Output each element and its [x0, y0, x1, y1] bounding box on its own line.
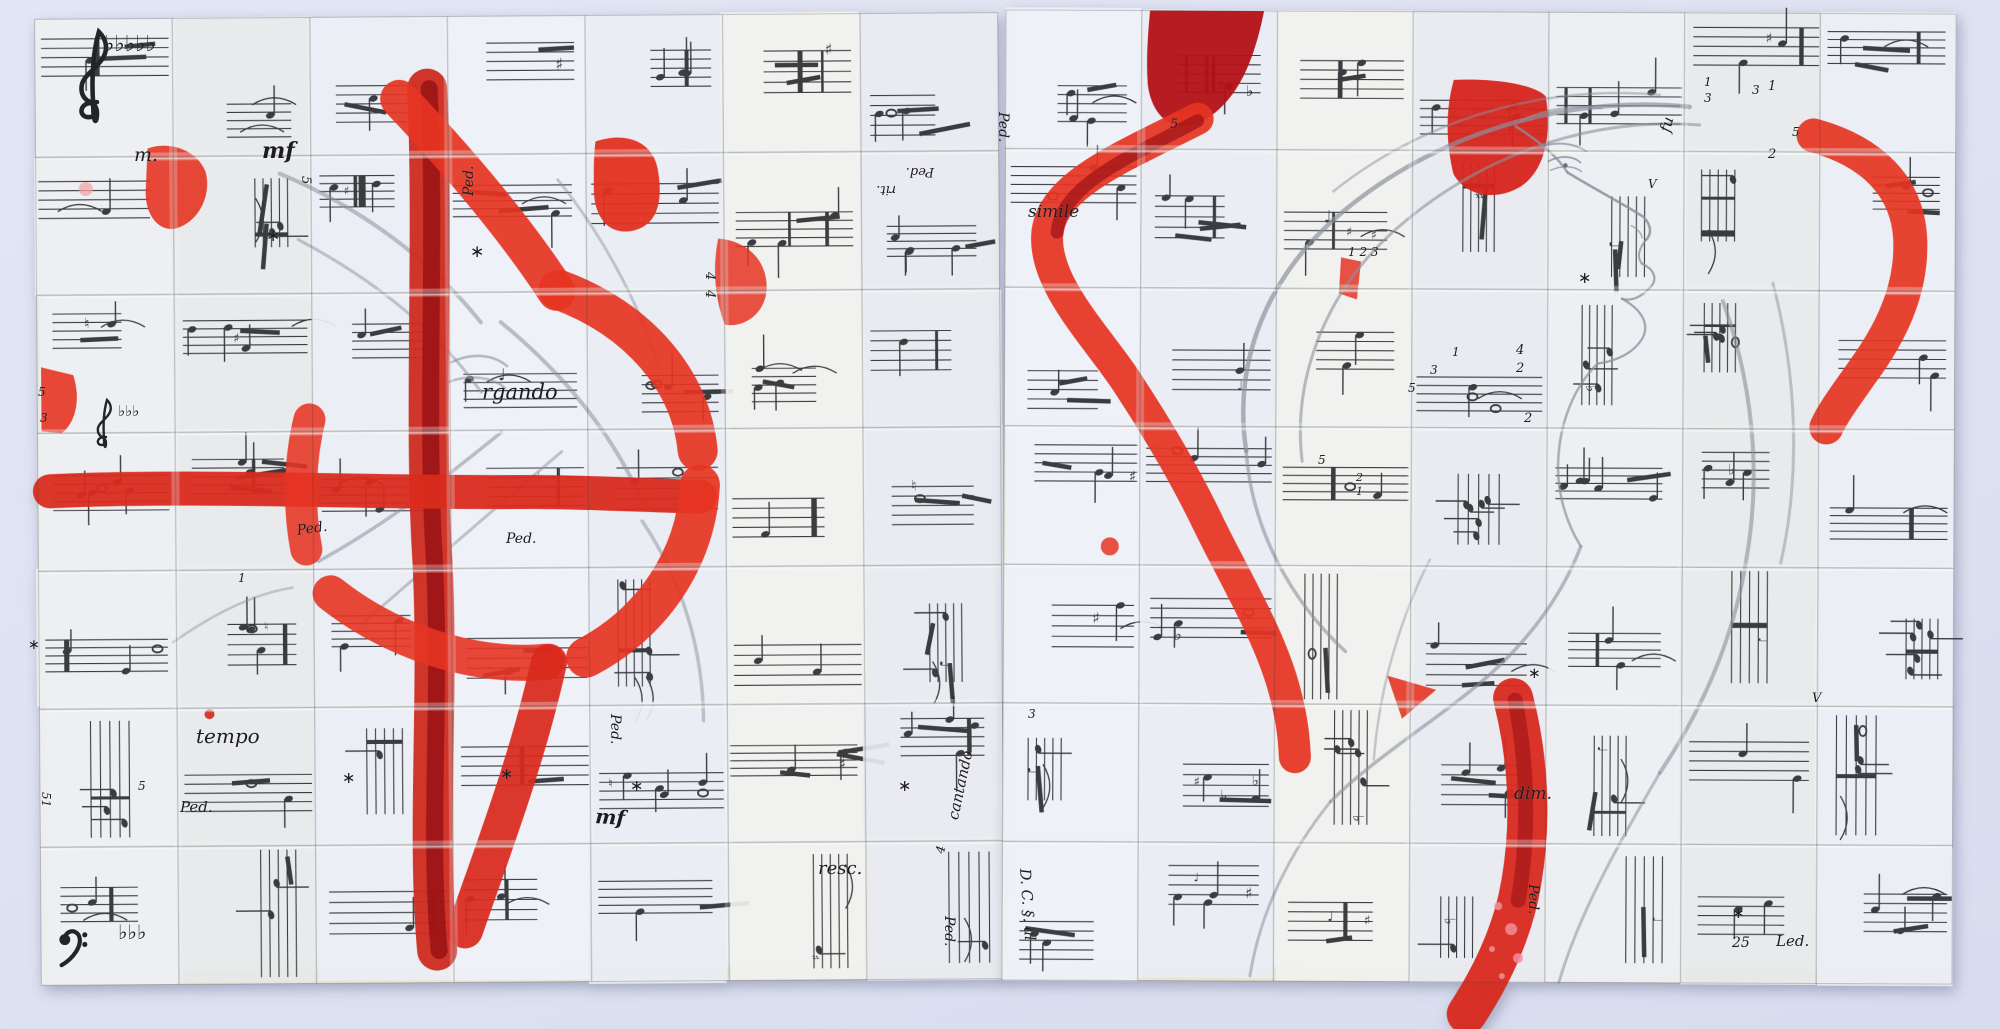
red-paint-splatter	[1513, 953, 1523, 963]
svg-text:♯: ♯	[1194, 774, 1200, 789]
svg-text:♭: ♭	[1582, 385, 1601, 392]
red-paint-splatter	[79, 182, 93, 196]
svg-text:♩: ♩	[1594, 746, 1609, 752]
red-paint-splatter	[1499, 973, 1505, 979]
svg-text:♩: ♩	[1193, 870, 1199, 884]
svg-text:♭: ♭	[1440, 918, 1458, 925]
artwork-photo: ♯♯♯♮♯♩♭♮♮♩♮♯♮♯♯♯♩♯♯♯♩♩♭♯♭♯♭♩♩♯♭♭♭♩♩♯♩♯♭♩…	[0, 0, 2000, 1029]
red-paint-ribbon	[428, 89, 439, 951]
svg-text:♩: ♩	[1024, 767, 1043, 775]
red-paint-splatter	[1505, 923, 1517, 935]
svg-text:♮: ♮	[911, 477, 917, 495]
svg-text:♮: ♮	[608, 775, 613, 790]
collage-artwork-canvas: ♯♯♯♮♯♩♭♮♮♩♮♯♮♯♯♯♩♯♯♯♩♩♭♯♭♯♭♩♩♯♭♭♭♩♩♯♩♯♭♩	[0, 0, 2000, 1029]
svg-text:♯: ♯	[1766, 31, 1773, 47]
svg-text:♩: ♩	[1605, 241, 1624, 249]
red-paint-ribbon	[50, 485, 700, 501]
svg-text:♮: ♮	[264, 619, 268, 633]
svg-text:♮: ♮	[84, 315, 89, 333]
svg-text:♩: ♩	[1756, 637, 1769, 642]
red-paint-ribbon	[301, 419, 311, 549]
red-paint-splatter	[1489, 946, 1495, 952]
svg-text:♯: ♯	[233, 332, 239, 347]
svg-text:♭: ♭	[1220, 786, 1228, 805]
left-panel: ♯♯♯♮♯♩♭♮♮♩♮♯♮♯	[32, 10, 1006, 987]
svg-text:♯: ♯	[1364, 913, 1371, 929]
svg-text:♭: ♭	[1252, 772, 1259, 790]
red-paint-splatter	[1101, 537, 1119, 555]
svg-text:♩: ♩	[498, 365, 506, 384]
right-panel: ♯♯♩♯♯♯♩♩♭♯♭♯♭♩♩♯♭♭♭♩♩♯♩♯♭♩	[1001, 4, 1965, 1016]
svg-text:♯: ♯	[838, 754, 846, 773]
svg-text:♯: ♯	[825, 40, 833, 59]
svg-text:♯: ♯	[1129, 467, 1136, 485]
svg-text:♯: ♯	[1245, 884, 1253, 902]
svg-text:♯: ♯	[808, 955, 822, 961]
svg-text:♯: ♯	[344, 184, 350, 198]
svg-text:♯: ♯	[555, 55, 563, 74]
svg-text:♯: ♯	[1092, 608, 1100, 627]
svg-text:♯: ♯	[1371, 227, 1377, 242]
svg-text:♯: ♯	[1346, 224, 1352, 239]
svg-text:♩: ♩	[1649, 916, 1664, 922]
red-paint-splatter	[1494, 902, 1502, 910]
svg-text:♭: ♭	[1174, 624, 1182, 644]
svg-text:♩: ♩	[1327, 909, 1334, 925]
svg-text:♭: ♭	[1349, 815, 1367, 822]
pencil-eye-dot	[1563, 163, 1567, 167]
